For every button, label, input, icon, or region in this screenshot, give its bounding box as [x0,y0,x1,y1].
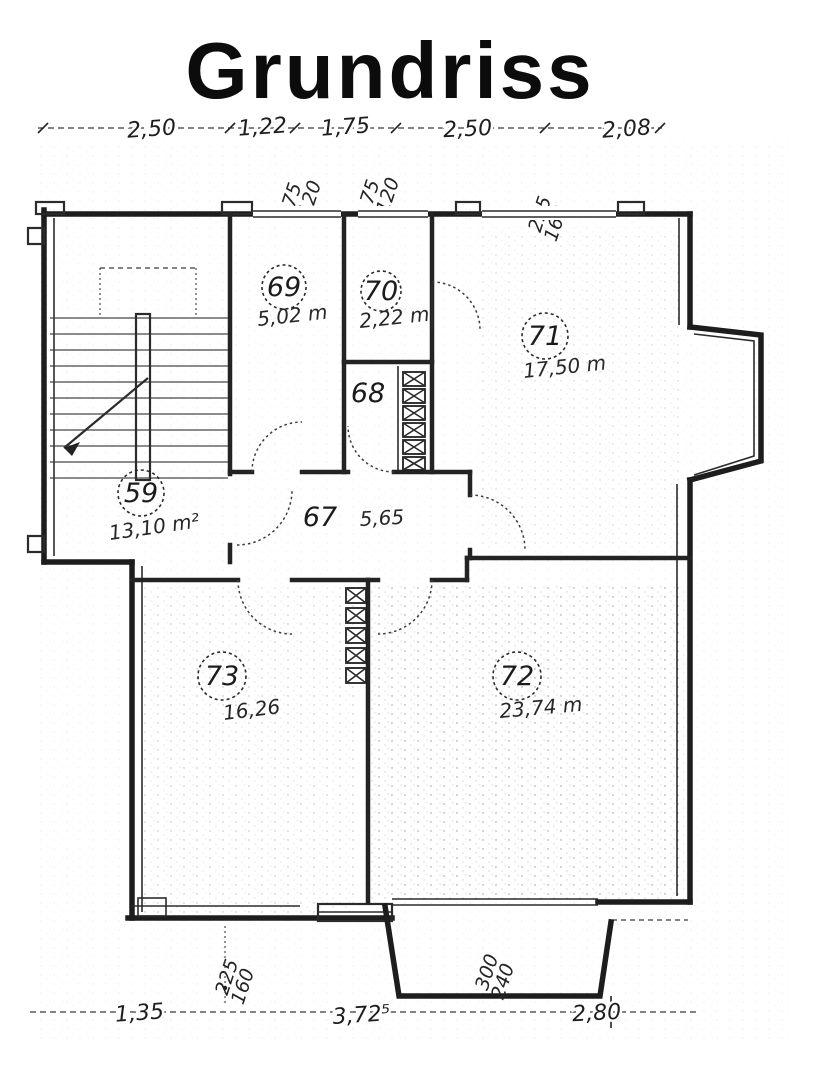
dim-label-bottom-1: 1,35 [114,999,165,1027]
page-title: Grundriss [185,26,594,115]
room-73-texture [142,588,354,914]
window-gap [482,206,616,220]
room-71-texture [480,230,680,550]
dim-tick [655,123,665,133]
dim-point [223,986,227,990]
dim-label-top-2: 1,22 [237,113,288,141]
room-67-area: 5,65 [359,505,405,531]
window-gap [358,206,428,220]
top-dimension-chain: 2,50 1,22 1,75 2,50 2,08 [38,113,665,143]
room-72-number: 72 [500,661,534,692]
dim-label-bottom-3: 2,80 [572,1000,622,1028]
room-68-number: 68 [351,378,385,409]
window-gap [253,206,341,220]
room-72-texture [368,585,684,899]
room-67-number: 67 [303,502,337,533]
floor-plan-page: Grundriss 2,50 1,22 1,75 2,50 2,08 75 12… [0,0,813,1080]
dim-label-bottom-2: 3,72⁵ [332,1001,391,1030]
room-71-number: 71 [528,321,562,352]
room-73-number: 73 [205,661,239,692]
dim-label-top-4: 2,50 [443,116,493,144]
shaft-72-73 [346,588,366,683]
room-70-number: 70 [364,276,398,307]
dim-label-top-5: 2,08 [601,115,652,143]
dim-label-top-1: 2,50 [126,115,177,143]
room-59-number: 59 [124,478,158,509]
dim-label-top-3: 1,75 [320,113,371,141]
room-69-number: 69 [267,272,301,303]
floor-plan-drawing: Grundriss 2,50 1,22 1,75 2,50 2,08 75 12… [0,0,813,1080]
